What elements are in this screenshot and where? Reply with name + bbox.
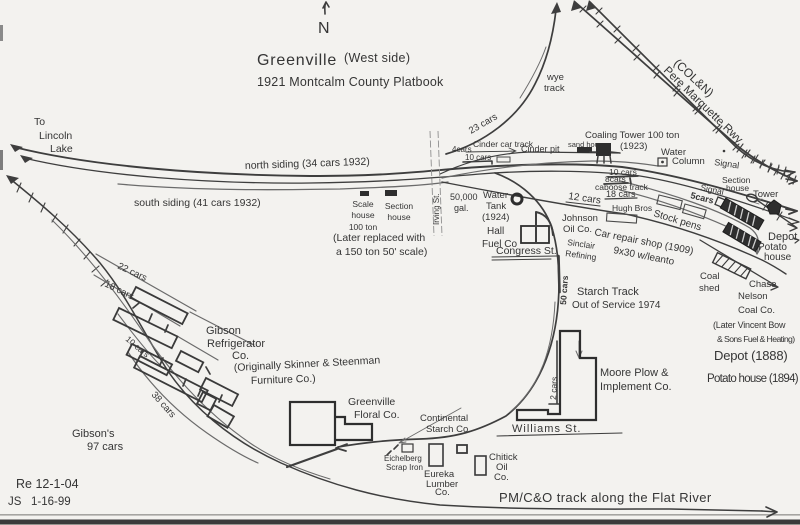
svg-text:Gibson's: Gibson's [72, 428, 115, 440]
svg-text:Coal Co.: Coal Co. [738, 305, 775, 316]
svg-text:To: To [34, 116, 45, 128]
svg-text:PM/C&O track along the Flat Ri: PM/C&O track along the Flat River [499, 490, 712, 505]
svg-text:Cinder pit: Cinder pit [521, 144, 560, 154]
svg-text:(1924): (1924) [482, 212, 509, 223]
svg-text:Water: Water [483, 190, 508, 201]
svg-text:Co.: Co. [232, 350, 249, 362]
svg-text:Out of Service 1974: Out of Service 1974 [572, 300, 661, 311]
svg-text:Refrigerator: Refrigerator [207, 338, 265, 350]
svg-text:Nelson: Nelson [738, 291, 768, 302]
svg-text:house: house [764, 252, 792, 263]
svg-text:Column: Column [672, 156, 705, 167]
svg-text:(Later Vincent Bow: (Later Vincent Bow [713, 320, 786, 330]
svg-text:Williams St.: Williams St. [512, 423, 581, 435]
svg-text:a 150 ton 50' scale): a 150 ton 50' scale) [336, 246, 427, 258]
svg-text:Floral Co.: Floral Co. [354, 409, 400, 421]
svg-text:Johnson: Johnson [562, 213, 598, 224]
svg-text:Starch Co.: Starch Co. [426, 424, 471, 435]
svg-text:Lincoln: Lincoln [39, 130, 72, 142]
svg-text:Potato house (1894): Potato house (1894) [707, 373, 799, 385]
svg-text:Congress St.: Congress St. [496, 245, 557, 257]
svg-text:Hall: Hall [487, 226, 504, 237]
svg-text:south siding (41 cars 1932): south siding (41 cars 1932) [134, 197, 261, 209]
svg-text:Starch Track: Starch Track [577, 286, 639, 298]
svg-text:Eichelberg: Eichelberg [384, 454, 422, 463]
svg-text:house: house [351, 210, 374, 220]
svg-text:Scale: Scale [352, 199, 374, 209]
svg-text:(Later replaced with: (Later replaced with [333, 232, 425, 244]
svg-text:house: house [726, 183, 749, 193]
svg-text:house: house [387, 212, 410, 222]
svg-text:Re 12-1-04: Re 12-1-04 [16, 477, 79, 491]
svg-text:50 cars: 50 cars [558, 275, 570, 305]
svg-text:Furniture Co.): Furniture Co.) [251, 373, 316, 387]
svg-text:50,000: 50,000 [450, 192, 478, 202]
svg-text:Co.: Co. [494, 472, 509, 483]
svg-text:1921 Montcalm County Platbook: 1921 Montcalm County Platbook [257, 75, 444, 89]
svg-text:Co.: Co. [435, 487, 450, 498]
svg-text:97 cars: 97 cars [87, 441, 124, 453]
svg-text:Hugh Bros: Hugh Bros [612, 203, 652, 213]
svg-text:Depot (1888): Depot (1888) [714, 348, 787, 363]
svg-text:Irving St.: Irving St. [432, 193, 441, 225]
svg-text:Oil Co.: Oil Co. [563, 224, 592, 235]
svg-text:wye: wye [546, 72, 564, 83]
svg-text:Greenville: Greenville [348, 396, 395, 408]
svg-text:(1923): (1923) [620, 141, 647, 152]
svg-text:Scrap Iron: Scrap Iron [386, 463, 423, 472]
svg-text:& Sons Fuel & Heating): & Sons Fuel & Heating) [717, 334, 795, 344]
svg-text:Gibson: Gibson [206, 325, 241, 337]
svg-text:(West side): (West side) [344, 51, 410, 65]
svg-text:Coal: Coal [700, 271, 720, 282]
svg-text:18 cars: 18 cars [606, 189, 636, 199]
svg-text:track: track [544, 83, 565, 94]
svg-text:100 ton: 100 ton [349, 222, 378, 232]
svg-text:Tank: Tank [486, 201, 506, 212]
svg-text:JS 1-16-99: JS 1-16-99 [8, 496, 71, 508]
svg-text:Continental: Continental [420, 413, 468, 424]
svg-text:Section: Section [385, 201, 414, 211]
svg-text:Moore Plow &: Moore Plow & [600, 367, 669, 379]
svg-text:Greenville: Greenville [257, 52, 337, 69]
svg-text:2 cars: 2 cars [548, 376, 559, 400]
svg-text:Coaling Tower 100 ton: Coaling Tower 100 ton [585, 130, 679, 141]
svg-text:Lake: Lake [50, 143, 73, 155]
svg-text:shed: shed [699, 283, 720, 294]
svg-text:Implement Co.: Implement Co. [600, 381, 672, 393]
svg-text:Chase: Chase [749, 279, 776, 290]
svg-text:gal.: gal. [454, 203, 469, 213]
svg-text:N: N [318, 20, 330, 37]
